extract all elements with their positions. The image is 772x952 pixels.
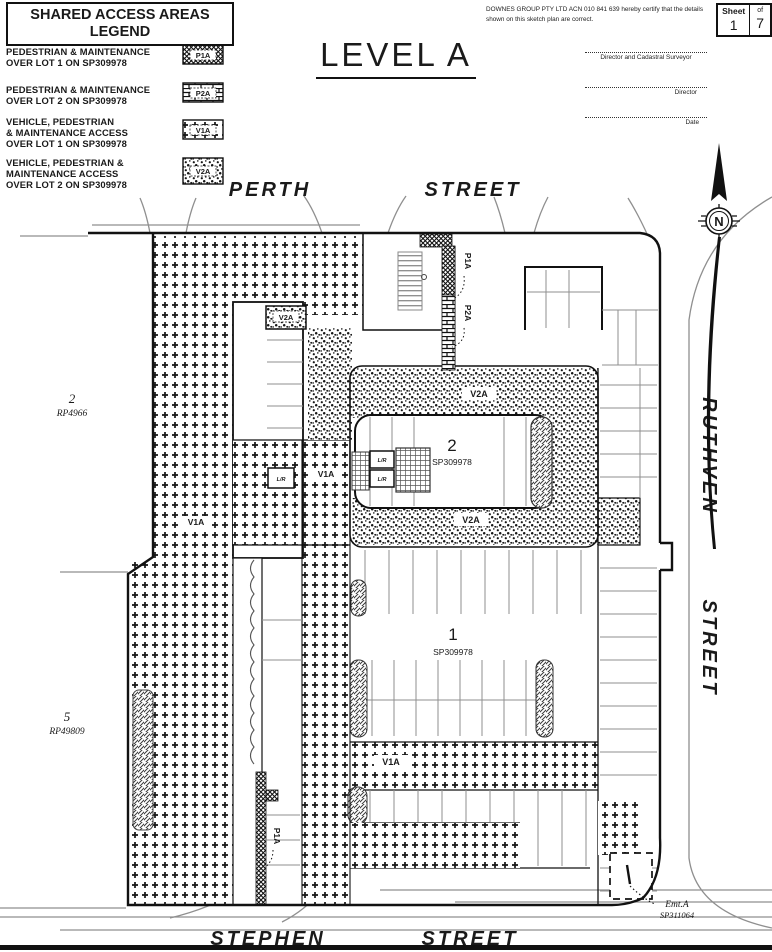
lift-label: L/R — [378, 477, 387, 483]
legend-item-v2a: VEHICLE, PEDESTRIAN & MAINTENANCE ACCESS… — [6, 157, 186, 190]
p1a-label: P1A — [463, 253, 473, 270]
signature-line — [585, 52, 707, 53]
legend-swatch-code: V2A — [196, 167, 211, 176]
legend-item-text: OVER LOT 2 ON SP309978 — [6, 95, 186, 106]
legend-item-text: VEHICLE, PEDESTRIAN — [6, 116, 186, 127]
lot-west-lower-plan: RP49809 — [48, 727, 85, 737]
v1a-area-cross-aisle — [233, 440, 302, 545]
sheet-of-label: of — [750, 5, 770, 14]
v1a-area-bottom-block — [350, 823, 520, 868]
legend-swatch-code: P1A — [196, 51, 211, 60]
v2a-label: V2A — [462, 515, 480, 525]
v1a-area-west-upper — [153, 236, 233, 558]
p1a-strip-bottom — [256, 772, 266, 905]
street-label-perth: PERTH — [229, 179, 311, 201]
top-parking-outline — [525, 267, 602, 330]
signature-label: Director and Cadastral Surveyor — [585, 54, 707, 61]
top-structures — [363, 233, 658, 370]
sheet-number: 1 — [718, 16, 749, 35]
v1a-area-mid-lane — [302, 440, 350, 905]
lot1-bottom-bays — [367, 660, 537, 736]
signature-line — [585, 117, 707, 118]
v1a-label: V1A — [188, 517, 205, 527]
v1a-label: V1A — [318, 469, 335, 479]
legend-item-text: OVER LOT 2 ON SP309978 — [6, 179, 186, 190]
sheet-total-col: of 7 — [750, 5, 770, 35]
signature-label: Date — [585, 119, 707, 126]
p1a-strip-top-h — [420, 234, 452, 247]
entry-ramp — [398, 252, 422, 310]
legend-title-box: SHARED ACCESS AREAS LEGEND — [6, 2, 234, 46]
legend-swatch-code: P2A — [196, 89, 211, 98]
lot2-hatched-end-cap — [531, 417, 552, 508]
legend-item-text: & MAINTENANCE ACCESS — [6, 127, 186, 138]
legend-item-v1a: VEHICLE, PEDESTRIAN & MAINTENANCE ACCESS… — [6, 116, 186, 149]
lot-west-upper-plan: RP4966 — [56, 409, 88, 419]
lot1-parking — [350, 550, 581, 737]
legend-title-line1: SHARED ACCESS AREAS — [8, 7, 232, 24]
legend-title-line2: LEGEND — [8, 24, 232, 41]
signature-block: Director and Cadastral Surveyor Director… — [585, 52, 707, 126]
legend-swatch-code: V1A — [196, 126, 211, 135]
lift-label: L/R — [277, 477, 286, 483]
page-edge-bar — [0, 945, 772, 950]
legend-item-text: PEDESTRIAN & MAINTENANCE — [6, 84, 186, 95]
lot-west-lower-number: 5 — [64, 709, 71, 724]
lot2-plan: SP309978 — [432, 457, 472, 467]
legend-item-text: PEDESTRIAN & MAINTENANCE — [6, 46, 186, 57]
easement-name: Emt.A — [664, 900, 689, 910]
certification-line2: shown on this sketch plan are correct. — [486, 15, 714, 25]
p2a-label: P2A — [463, 305, 473, 322]
easement-box — [610, 853, 655, 904]
legend: SHARED ACCESS AREAS LEGEND PEDESTRIAN & … — [6, 2, 234, 46]
lot1-number: 1 — [448, 625, 457, 644]
lot1-plan: SP309978 — [433, 647, 473, 657]
signature-label: Director — [585, 89, 707, 96]
v1a-area-bottom-right — [598, 801, 638, 855]
legend-item-text: MAINTENANCE ACCESS — [6, 168, 186, 179]
signature-row: Date — [585, 117, 707, 126]
legend-item-text: OVER LOT 1 ON SP309978 — [6, 57, 186, 68]
legend-item-p2a: PEDESTRIAN & MAINTENANCE OVER LOT 2 ON S… — [6, 84, 186, 106]
p1a-strip-top-v — [442, 246, 455, 295]
p1a-label: P1A — [272, 828, 282, 845]
sheet-col: Sheet 1 — [718, 5, 750, 35]
lot1-top-bays — [365, 550, 581, 614]
sketch-plan-page: L/R L/R L/R V2A PERTH STREET STEPHEN STR… — [0, 0, 772, 952]
legend-item-text: VEHICLE, PEDESTRIAN & — [6, 157, 186, 168]
certification-line1: DOWNES GROUP PTY LTD ACN 010 841 639 her… — [486, 5, 714, 15]
lift-label: L/R — [378, 458, 387, 464]
v2a-label: V2A — [279, 313, 294, 322]
p1a-block-small — [266, 790, 278, 801]
drawing-title: LEVEL A — [316, 36, 476, 79]
legend-item-p1a: PEDESTRIAN & MAINTENANCE OVER LOT 1 ON S… — [6, 46, 186, 68]
sheet-number-box: Sheet 1 of 7 — [716, 3, 772, 37]
certification-block: DOWNES GROUP PTY LTD ACN 010 841 639 her… — [486, 5, 714, 24]
easement-plan: SP311064 — [660, 910, 695, 920]
signature-row: Director — [585, 87, 707, 96]
sheet-total: 7 — [750, 14, 770, 33]
sheet-label: Sheet — [718, 5, 749, 16]
lot-west-upper-number: 2 — [69, 391, 76, 406]
v2a-label: V2A — [470, 389, 488, 399]
west-ramp-hatch — [133, 690, 153, 830]
lot2-number: 2 — [447, 436, 456, 455]
signature-row: Director and Cadastral Surveyor — [585, 52, 707, 61]
stair-grid — [396, 448, 430, 492]
p2a-strip — [442, 295, 455, 370]
v2a-plan-box: V2A — [266, 306, 306, 329]
street-kerb-lines — [0, 196, 772, 930]
street-label-right: STREET — [698, 600, 720, 697]
street-label-top: STREET — [425, 179, 522, 201]
legend-item-text: OVER LOT 1 ON SP309978 — [6, 138, 186, 149]
top-parking-bays — [527, 270, 658, 365]
signature-line — [585, 87, 707, 88]
north-label: N — [714, 214, 723, 229]
v1a-label: V1A — [382, 757, 400, 767]
legend-swatches: P1A P2A V1A V2A — [183, 45, 223, 184]
